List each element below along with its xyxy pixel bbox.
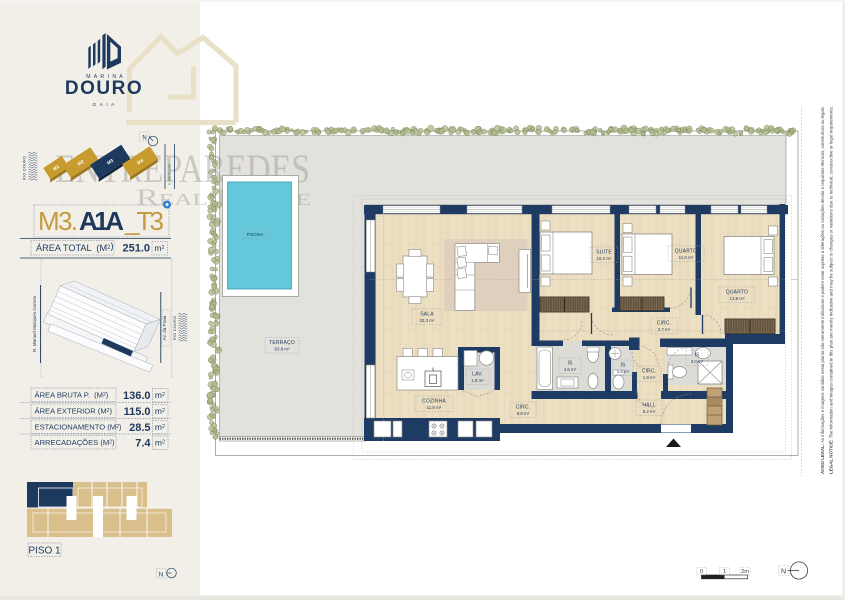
svg-text:N: N <box>781 569 786 576</box>
svg-text:IS: IS <box>620 363 626 369</box>
svg-text:SALA: SALA <box>420 312 434 318</box>
svg-text:TERRAÇO: TERRAÇO <box>269 340 295 346</box>
svg-text:7.4: 7.4 <box>135 438 151 450</box>
svg-text:136.0: 136.0 <box>123 390 151 402</box>
svg-text:N: N <box>159 572 164 579</box>
svg-text:DOURO: DOURO <box>65 78 143 99</box>
svg-text:AVISO LEGAL: As informações e: AVISO LEGAL: As informações e imagens co… <box>820 106 825 474</box>
svg-text:G A I A: G A I A <box>92 102 115 108</box>
svg-text:R. Manuel Marques Gomes: R. Manuel Marques Gomes <box>32 295 37 352</box>
svg-text:15.2 m2: 15.2 m2 <box>597 256 612 261</box>
svg-text:28.5: 28.5 <box>129 422 150 434</box>
svg-text:CIRC.: CIRC. <box>657 321 672 327</box>
svg-text:ÁREA TOTAL (M2): ÁREA TOTAL (M2) <box>36 241 114 253</box>
svg-text:N: N <box>142 136 146 142</box>
svg-text:251.0: 251.0 <box>122 243 150 255</box>
svg-text:Av. da Praia: Av. da Praia <box>162 315 167 340</box>
svg-text:ÁREA EXTERIOR (M2): ÁREA EXTERIOR (M2) <box>35 407 113 416</box>
svg-text:RIO DOURO: RIO DOURO <box>23 156 27 180</box>
svg-text:11.0 m2: 11.0 m2 <box>679 255 694 260</box>
svg-text:CIRC.: CIRC. <box>642 369 657 375</box>
svg-text:0: 0 <box>700 569 703 575</box>
svg-text:LAV.: LAV. <box>472 372 483 378</box>
svg-text:PISCINA: PISCINA <box>247 232 264 237</box>
svg-text:QUARTO: QUARTO <box>726 290 748 296</box>
svg-text:CIRC.: CIRC. <box>516 405 531 411</box>
svg-text:ESTACIONAMENTO (M2): ESTACIONAMENTO (M2) <box>35 423 122 432</box>
svg-text:33.3 m2: 33.3 m2 <box>420 318 435 323</box>
svg-text:HALL: HALL <box>642 403 655 409</box>
svg-text:IS: IS <box>567 361 573 367</box>
svg-text:2m: 2m <box>741 569 749 575</box>
svg-text:LEGAL NOTICE: The information: LEGAL NOTICE: The information and images… <box>829 106 834 474</box>
svg-text:11.9 m2: 11.9 m2 <box>427 405 442 410</box>
svg-text:IS: IS <box>694 353 700 359</box>
svg-text:QUARTO: QUARTO <box>675 249 697 255</box>
svg-text:PISO 1: PISO 1 <box>28 546 61 557</box>
svg-text:1: 1 <box>723 569 726 575</box>
svg-text:SUITE: SUITE <box>596 250 612 256</box>
svg-text:RIO DOURO: RIO DOURO <box>173 316 177 340</box>
svg-text:ARRECADAÇÕES (M2): ARRECADAÇÕES (M2) <box>35 438 115 447</box>
svg-text:COZINHA: COZINHA <box>422 399 446 405</box>
svg-text:13.8 m2: 13.8 m2 <box>730 296 745 301</box>
svg-text:R. PARTICULAR: R. PARTICULAR <box>168 164 172 185</box>
svg-text:_T3: _T3 <box>124 206 164 236</box>
svg-text:M3.: M3. <box>38 206 78 236</box>
svg-text:93.8 m2: 93.8 m2 <box>275 346 290 351</box>
svg-text:A1A: A1A <box>79 206 124 236</box>
svg-text:115.0: 115.0 <box>124 406 151 418</box>
svg-text:ÁREA BRUTA P. (M2): ÁREA BRUTA P. (M2) <box>35 391 109 400</box>
